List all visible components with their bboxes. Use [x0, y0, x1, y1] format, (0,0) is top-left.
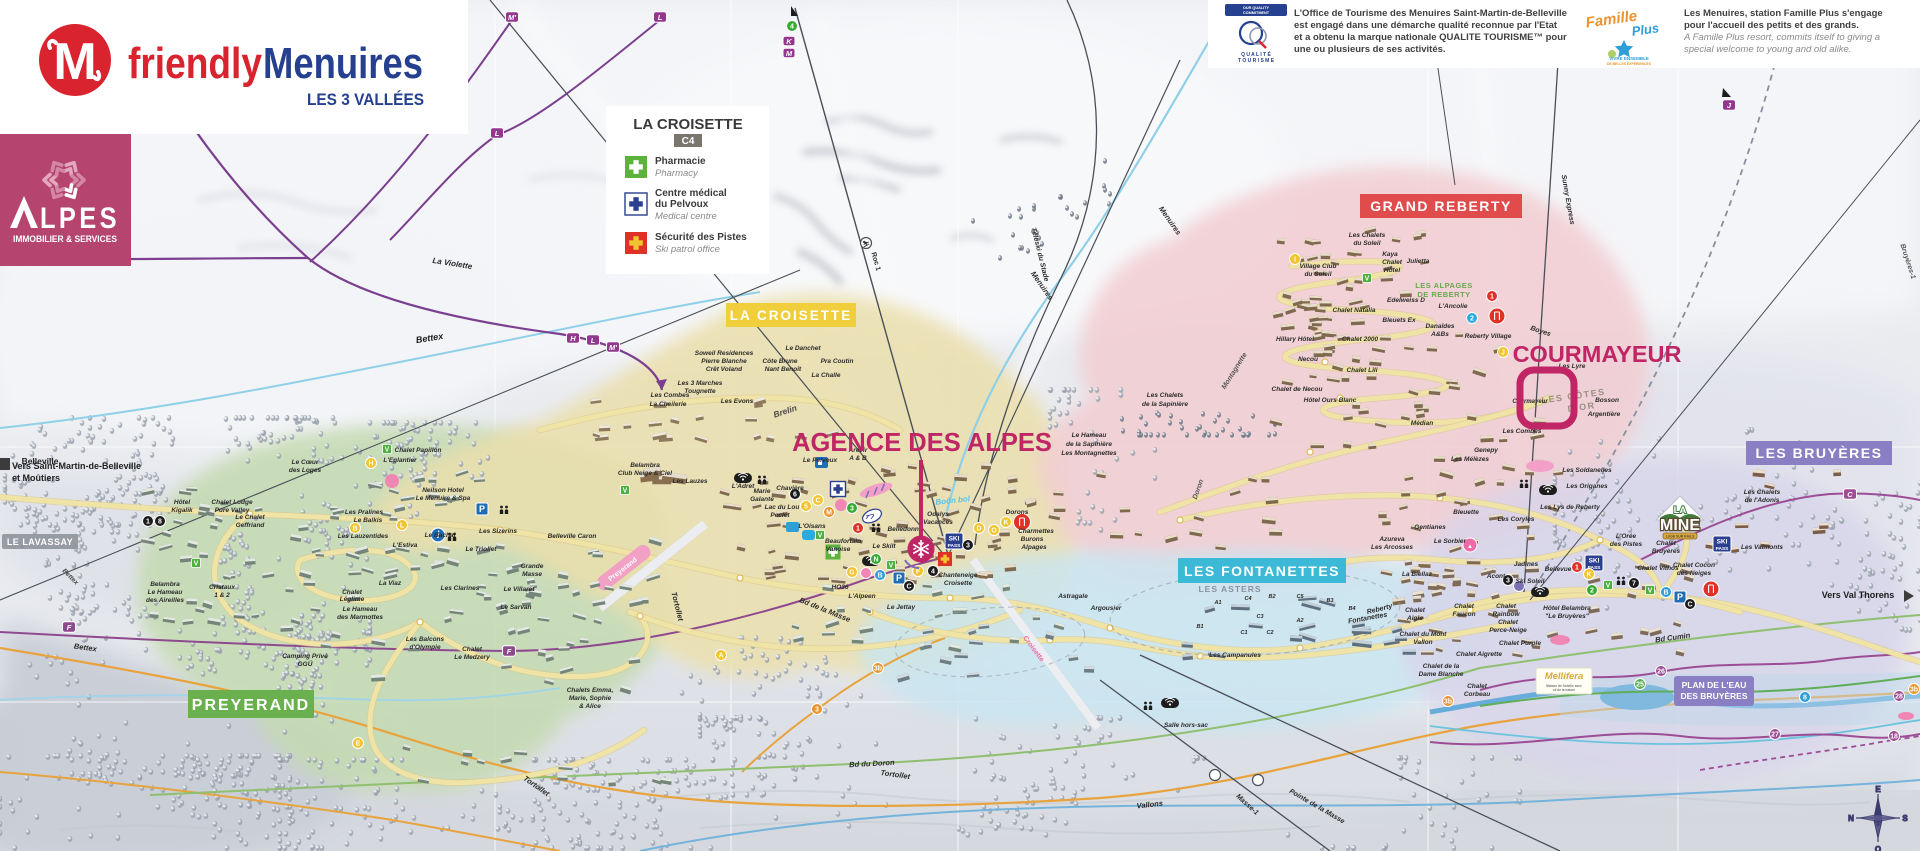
svg-text:d'Olympie: d'Olympie: [409, 644, 441, 651]
svg-text:V: V: [818, 533, 823, 540]
svg-text:Argousier: Argousier: [1090, 605, 1122, 612]
svg-text:L'Office de Tourisme des Menui: L'Office de Tourisme des Menuires Saint-…: [1294, 8, 1567, 19]
svg-text:K: K: [1586, 572, 1591, 579]
svg-text:4: 4: [931, 569, 935, 576]
svg-text:Le Skilt: Le Skilt: [872, 543, 896, 550]
svg-text:Necou: Necou: [1298, 356, 1318, 363]
svg-text:des Loges: des Loges: [289, 467, 322, 474]
svg-text:A: A: [718, 653, 723, 660]
svg-text:O: O: [991, 528, 997, 535]
svg-text:Les Soldanelles: Les Soldanelles: [1562, 467, 1612, 474]
svg-text:G: G: [849, 570, 855, 577]
svg-text:V: V: [623, 488, 628, 495]
svg-text:de l'Adonis: de l'Adonis: [1745, 497, 1780, 504]
svg-text:une ou plusieurs de ses activi: une ou plusieurs de ses activités.: [1294, 44, 1446, 55]
svg-text:Reberty Village: Reberty Village: [1465, 333, 1512, 340]
svg-text:Le Bachal: Le Bachal: [425, 532, 456, 539]
svg-text:18: 18: [1890, 734, 1898, 741]
svg-text:1: 1: [146, 519, 150, 526]
svg-text:Chalet de Necou: Chalet de Necou: [1272, 386, 1323, 393]
svg-text:Le Menuire & Spa: Le Menuire & Spa: [416, 495, 471, 502]
svg-text:Hillary Hôtel: Hillary Hôtel: [1276, 336, 1314, 343]
svg-text:6: 6: [793, 492, 797, 499]
svg-text:M': M': [609, 343, 617, 352]
svg-text:Chalet de la: Chalet de la: [1423, 663, 1460, 670]
svg-text:SKI: SKI: [1717, 539, 1728, 546]
svg-text:Les Montagnettes: Les Montagnettes: [1061, 450, 1117, 457]
svg-text:LUGE SUR RAILS: LUGE SUR RAILS: [1666, 535, 1695, 539]
svg-text:A Famille Plus resort, commits: A Famille Plus resort, commits itself to…: [1683, 32, 1880, 43]
svg-text:Chanteneige: Chanteneige: [938, 572, 977, 579]
svg-text:"Le Bruyères": "Le Bruyères": [1545, 613, 1590, 620]
svg-text:Pharmacie: Pharmacie: [655, 156, 706, 167]
svg-text:Pure Valley: Pure Valley: [215, 507, 250, 514]
svg-text:3: 3: [815, 707, 819, 714]
svg-text:des Neiges: des Neiges: [1677, 570, 1712, 577]
svg-text:du Soleil: du Soleil: [1304, 271, 1331, 278]
svg-text:LES BRUYÈRES: LES BRUYÈRES: [1756, 445, 1883, 461]
svg-text:Dorons: Dorons: [1006, 509, 1029, 516]
svg-text:Cristaux: Cristaux: [209, 584, 235, 591]
svg-text:L: L: [658, 13, 663, 22]
svg-text:SKI: SKI: [1589, 558, 1600, 565]
svg-text:L'Eglantier: L'Eglantier: [383, 457, 417, 464]
svg-text:C3: C3: [1256, 614, 1263, 620]
svg-text:DES BRUYÈRES: DES BRUYÈRES: [1680, 691, 1747, 701]
svg-text:de la Sapinière: de la Sapinière: [1066, 441, 1112, 448]
svg-text:Les Chalets: Les Chalets: [1147, 392, 1184, 399]
svg-text:Les Lys de Reberty: Les Lys de Reberty: [1540, 504, 1600, 511]
svg-text:Chalet: Chalet: [1382, 259, 1403, 266]
svg-text:3: 3: [850, 506, 854, 513]
svg-text:HO36: HO36: [832, 584, 849, 591]
svg-text:LA CROISETTE: LA CROISETTE: [633, 116, 742, 133]
svg-text:des Marmottes: des Marmottes: [337, 614, 383, 621]
svg-text:V: V: [889, 563, 894, 570]
svg-text:Charmettes: Charmettes: [1018, 528, 1054, 535]
svg-text:Chalet Aigrette: Chalet Aigrette: [1456, 651, 1502, 658]
svg-text:Rainbow: Rainbow: [1492, 611, 1520, 618]
svg-text:H: H: [570, 334, 576, 343]
svg-text:A2: A2: [1295, 618, 1303, 624]
svg-text:C4: C4: [682, 136, 695, 147]
svg-text:Kigalik: Kigalik: [171, 507, 193, 514]
svg-text:Médian: Médian: [1411, 420, 1433, 427]
svg-text:Chalet Natalia: Chalet Natalia: [1333, 307, 1376, 314]
svg-text:Marie, Sophie: Marie, Sophie: [569, 695, 612, 702]
svg-text:La Challe: La Challe: [812, 372, 841, 379]
svg-text:Camping Privé: Camping Privé: [282, 653, 328, 660]
svg-text:PREYERAND: PREYERAND: [192, 697, 310, 714]
svg-text:Gentianes: Gentianes: [1414, 524, 1446, 531]
svg-text:⛷: ⛷: [862, 240, 870, 248]
svg-text:Léglime: Léglime: [340, 596, 365, 603]
svg-text:Côte Brune: Côte Brune: [762, 358, 797, 365]
svg-text:Edelweiss D: Edelweiss D: [1387, 297, 1425, 304]
svg-text:7: 7: [1632, 581, 1636, 588]
svg-text:H: H: [368, 461, 373, 468]
svg-text:Le Danchet: Le Danchet: [785, 345, 821, 352]
svg-text:GRAND REBERTY: GRAND REBERTY: [1370, 198, 1512, 214]
svg-text:Belleville: Belleville: [22, 456, 59, 466]
svg-text:Hôtel: Hôtel: [174, 499, 190, 506]
svg-text:Le Medzery: Le Medzery: [454, 654, 490, 661]
svg-text:3b: 3b: [1444, 699, 1452, 706]
svg-text:LES 3 VALLÉES: LES 3 VALLÉES: [307, 90, 424, 109]
svg-text:B3: B3: [1326, 598, 1333, 604]
svg-text:du Soleil: du Soleil: [1353, 240, 1380, 247]
svg-text:B: B: [877, 573, 882, 580]
svg-text:Le Hameau: Le Hameau: [1072, 432, 1107, 439]
svg-text:2: 2: [1470, 316, 1474, 323]
svg-text:Centre médical: Centre médical: [655, 188, 727, 199]
svg-text:Le Chalet: Le Chalet: [235, 514, 265, 521]
svg-text:Hôtel: Hôtel: [1384, 267, 1400, 274]
svg-text:1 & 2: 1 & 2: [214, 592, 230, 599]
svg-text:SKI: SKI: [949, 536, 960, 543]
svg-text:Bosson: Bosson: [1595, 397, 1619, 404]
svg-text:Chalet: Chalet: [342, 589, 363, 596]
svg-text:F: F: [67, 623, 72, 632]
svg-text:pour l'accueil des petits et d: pour l'accueil des petits et des grands.: [1684, 20, 1859, 31]
svg-text:du Pelvoux: du Pelvoux: [655, 199, 709, 210]
svg-text:O: O: [1875, 845, 1881, 851]
svg-text:Chalet: Chalet: [1467, 683, 1488, 690]
svg-text:Vacances: Vacances: [923, 519, 953, 526]
svg-text:Bleuets Ex: Bleuets Ex: [1382, 317, 1416, 324]
svg-text:Les Mélèzes: Les Mélèzes: [1451, 456, 1489, 463]
svg-text:Hôtel Ours Blanc: Hôtel Ours Blanc: [1304, 397, 1357, 404]
svg-text:Pierre Blanche: Pierre Blanche: [701, 358, 747, 365]
svg-text:Geffriand: Geffriand: [236, 522, 266, 529]
svg-text:J: J: [1501, 350, 1505, 357]
svg-text:Le Sarvan: Le Sarvan: [500, 604, 531, 611]
svg-text:Les Sizerins: Les Sizerins: [479, 528, 517, 535]
svg-text:Vers Val Thorens: Vers Val Thorens: [1822, 590, 1895, 600]
svg-text:B1: B1: [1196, 624, 1203, 630]
svg-text:DE BELLES EXPÉRIENCES: DE BELLES EXPÉRIENCES: [1607, 61, 1652, 66]
svg-text:C: C: [906, 584, 911, 591]
svg-text:Neilson Hotel: Neilson Hotel: [422, 487, 464, 494]
svg-text:Pra Coutin: Pra Coutin: [821, 358, 854, 365]
svg-text:E: E: [1875, 785, 1881, 794]
svg-text:Belambra: Belambra: [150, 581, 180, 588]
svg-text:Les Balcons: Les Balcons: [406, 636, 445, 643]
svg-text:& Alice: & Alice: [579, 703, 601, 710]
svg-text:Salle hors-sac: Salle hors-sac: [1164, 722, 1208, 729]
svg-text:Vallon: Vallon: [1413, 639, 1432, 646]
svg-text:D: D: [976, 526, 981, 533]
svg-text:L: L: [400, 523, 405, 530]
svg-text:cil de la nature: cil de la nature: [1553, 688, 1576, 692]
svg-text:Nant Benoît: Nant Benoît: [765, 366, 802, 373]
svg-text:P: P: [479, 504, 485, 514]
svg-text:Chalets Emma,: Chalets Emma,: [567, 687, 614, 694]
svg-text:Chalet Papillon: Chalet Papillon: [395, 447, 442, 454]
svg-text:1: 1: [1575, 565, 1579, 572]
svg-text:V: V: [1606, 583, 1611, 590]
svg-text:Corbeau: Corbeau: [1464, 691, 1490, 698]
svg-text:B: B: [352, 526, 357, 533]
svg-text:B4: B4: [1348, 606, 1355, 612]
svg-text:COMMITMENT: COMMITMENT: [1243, 11, 1270, 15]
svg-text:COURMAYEUR: COURMAYEUR: [1513, 341, 1682, 367]
svg-text:V: V: [385, 447, 390, 454]
svg-text:Le Hameau: Le Hameau: [343, 606, 378, 613]
svg-text:PASS: PASS: [1716, 546, 1730, 552]
svg-text:Q U A L I T É: Q U A L I T É: [1241, 50, 1271, 58]
svg-text:Galante: Galante: [750, 496, 774, 503]
svg-text:Menuires: Menuires: [263, 39, 423, 88]
svg-text:M: M: [53, 33, 96, 91]
svg-text:L: L: [591, 336, 596, 345]
svg-text:Jadines: Jadines: [1514, 561, 1539, 568]
svg-text:Les Chalets: Les Chalets: [1744, 489, 1781, 496]
svg-text:Masse: Masse: [522, 571, 542, 578]
svg-text:Les Lauzentides: Les Lauzentides: [338, 533, 389, 540]
svg-text:et Moûtiers: et Moûtiers: [12, 473, 60, 483]
svg-text:Les Combes: Les Combes: [651, 392, 690, 399]
svg-text:La Biellaz: La Biellaz: [1402, 571, 1433, 578]
svg-text:Vanoise: Vanoise: [826, 546, 851, 553]
svg-text:C5: C5: [1296, 594, 1304, 600]
svg-text:K: K: [786, 37, 792, 46]
svg-text:3b: 3b: [1910, 687, 1918, 694]
svg-text:28: 28: [1895, 694, 1903, 701]
svg-text:Le Villaret: Le Villaret: [504, 586, 536, 593]
svg-text:Bellevue: Bellevue: [1545, 566, 1572, 573]
svg-text:Croisette: Croisette: [944, 580, 973, 587]
svg-text:Peclet: Peclet: [770, 512, 790, 519]
svg-text:Mellifera: Mellifera: [1545, 671, 1584, 682]
svg-text:LA CROISETTE: LA CROISETTE: [730, 308, 853, 323]
svg-text:LPES: LPES: [40, 202, 120, 235]
svg-text:Chalet Lili: Chalet Lili: [1346, 367, 1377, 374]
svg-text:M': M': [508, 13, 516, 22]
svg-text:LES ASTERS: LES ASTERS: [1198, 584, 1261, 594]
svg-text:LA: LA: [1674, 505, 1687, 516]
svg-text:La Cheilerie: La Cheilerie: [650, 401, 687, 408]
svg-text:Medical centre: Medical centre: [655, 211, 717, 222]
svg-text:Chalet Lodge: Chalet Lodge: [211, 499, 253, 506]
svg-text:Le Balkis: Le Balkis: [354, 517, 383, 524]
svg-text:Les Origanes: Les Origanes: [1566, 483, 1608, 490]
svg-text:M: M: [826, 510, 832, 517]
svg-text:C: C: [1687, 602, 1692, 609]
svg-text:Kaya: Kaya: [1382, 251, 1398, 258]
svg-text:friendly: friendly: [128, 39, 262, 88]
svg-text:P: P: [896, 573, 902, 583]
svg-text:PLAN DE L'EAU: PLAN DE L'EAU: [1682, 680, 1747, 690]
svg-text:Chalet: Chalet: [462, 646, 483, 653]
svg-text:L'Oisans: L'Oisans: [798, 523, 826, 530]
svg-text:Chalet: Chalet: [1454, 603, 1475, 610]
svg-text:Beaufortain: Beaufortain: [825, 538, 861, 545]
svg-text:E: E: [356, 741, 361, 748]
svg-text:C4: C4: [1244, 596, 1251, 602]
svg-text:N: N: [873, 557, 878, 564]
svg-text:L'Estiva: L'Estiva: [393, 542, 418, 549]
svg-text:F: F: [916, 569, 921, 576]
svg-text:27: 27: [1771, 732, 1779, 739]
svg-text:I: I: [1294, 257, 1296, 264]
svg-text:VIVRE ENSEMBLE: VIVRE ENSEMBLE: [1609, 56, 1649, 61]
svg-text:L'Alpeen: L'Alpeen: [848, 593, 875, 600]
svg-text:OUR QUALITY: OUR QUALITY: [1243, 6, 1270, 10]
svg-text:Les Menuires, station Famille: Les Menuires, station Famille Plus s'eng…: [1684, 8, 1883, 19]
svg-text:F: F: [507, 647, 512, 656]
svg-text:Chalet: Chalet: [1498, 619, 1519, 626]
svg-text:Soweil Residences: Soweil Residences: [695, 350, 754, 357]
svg-text:L'Orée: L'Orée: [1616, 533, 1637, 540]
svg-text:est engagé dans une démarche q: est engagé dans une démarche qualité rec…: [1294, 20, 1558, 31]
svg-text:Les Coryles: Les Coryles: [1498, 516, 1535, 523]
svg-text:Marie: Marie: [754, 488, 771, 495]
svg-text:3b: 3b: [874, 666, 882, 673]
svg-text:LE LAVASSAY: LE LAVASSAY: [7, 537, 73, 547]
svg-text:Club Neige & Ciel: Club Neige & Ciel: [618, 470, 672, 477]
svg-text:Alpages: Alpages: [1020, 544, 1047, 551]
svg-text:2: 2: [1590, 588, 1594, 595]
svg-text:V: V: [1648, 588, 1653, 595]
svg-text:Odalys: Odalys: [927, 511, 949, 518]
svg-text:8: 8: [158, 519, 162, 526]
svg-text:Chalet Purple: Chalet Purple: [1499, 640, 1541, 647]
svg-text:K: K: [1003, 520, 1008, 527]
svg-text:25: 25: [1636, 682, 1644, 689]
svg-text:Les Evons: Les Evons: [721, 398, 754, 405]
svg-text:3: 3: [966, 543, 970, 550]
svg-text:C2: C2: [1266, 630, 1273, 636]
svg-text:Chalet du Mont: Chalet du Mont: [1400, 631, 1448, 638]
svg-text:Genepy: Genepy: [1474, 447, 1498, 454]
svg-text:P: P: [1677, 592, 1683, 602]
svg-text:special welcome to young and o: special welcome to young and old alike.: [1684, 44, 1851, 55]
svg-text:Belleville Caron: Belleville Caron: [548, 533, 597, 540]
svg-text:La Viaz: La Viaz: [379, 580, 402, 587]
svg-text:Le Jettay: Le Jettay: [887, 604, 916, 611]
svg-text:Ski Soleil: Ski Soleil: [1516, 578, 1545, 585]
svg-text:PASS: PASS: [948, 543, 962, 549]
svg-text:V: V: [194, 561, 199, 568]
svg-text:Danaïdes: Danaïdes: [1426, 323, 1455, 330]
svg-text:Dame Blanche: Dame Blanche: [1419, 671, 1464, 678]
svg-text:LES FONTANETTES: LES FONTANETTES: [1184, 563, 1340, 579]
svg-text:Chalet: Chalet: [1496, 603, 1517, 610]
svg-text:N: N: [1848, 814, 1854, 823]
svg-text:Les Valmonts: Les Valmonts: [1741, 544, 1783, 551]
svg-text:▲: ▲: [1467, 544, 1473, 550]
svg-text:Acont: Acont: [1486, 573, 1506, 580]
svg-text:26: 26: [1657, 669, 1665, 676]
svg-text:Les Clarines: Les Clarines: [441, 585, 480, 592]
svg-text:Burons: Burons: [1021, 536, 1044, 543]
svg-text:Les Arcosses: Les Arcosses: [1371, 544, 1413, 551]
svg-text:Sécurité des Pistes: Sécurité des Pistes: [655, 232, 747, 243]
svg-text:de la Sapinière: de la Sapinière: [1142, 401, 1188, 408]
svg-text:Les Chalets: Les Chalets: [1349, 232, 1386, 239]
svg-text:L: L: [495, 129, 500, 138]
svg-text:B: B: [1663, 590, 1668, 597]
svg-text:L'Ancolie: L'Ancolie: [1439, 303, 1468, 310]
svg-text:Les Lauzes: Les Lauzes: [672, 478, 707, 485]
svg-text:Crêt Voland: Crêt Voland: [706, 366, 743, 373]
svg-text:Le Triollet: Le Triollet: [466, 546, 498, 553]
svg-text:Astragale: Astragale: [1057, 593, 1088, 600]
svg-text:3: 3: [1506, 578, 1510, 585]
svg-text:et a obtenu la marque national: et a obtenu la marque nationale QUALITE …: [1294, 32, 1567, 43]
svg-text:A1: A1: [1213, 600, 1221, 606]
svg-text:8: 8: [1803, 695, 1807, 702]
svg-text:Bleuette: Bleuette: [1453, 509, 1479, 516]
svg-text:des Pistes: des Pistes: [1610, 541, 1643, 548]
svg-text:GGÜ: GGÜ: [298, 659, 313, 668]
svg-text:Azureva: Azureva: [1378, 536, 1405, 543]
svg-text:Belambra: Belambra: [630, 462, 660, 469]
svg-text:1: 1: [1490, 294, 1494, 301]
svg-text:des Aireilles: des Aireilles: [146, 597, 184, 604]
svg-text:V: V: [1365, 276, 1370, 283]
svg-text:Aigle: Aigle: [1406, 615, 1423, 622]
svg-text:Faucon: Faucon: [1452, 611, 1475, 618]
svg-text:Bruyères: Bruyères: [1652, 548, 1681, 555]
svg-text:Le Cœur: Le Cœur: [292, 459, 319, 466]
svg-text:Les Pralines: Les Pralines: [345, 509, 384, 516]
svg-text:5: 5: [804, 504, 808, 511]
svg-text:Chavière: Chavière: [776, 485, 804, 492]
svg-text:Le Sorbier: Le Sorbier: [1434, 538, 1467, 545]
svg-text:Argentière: Argentière: [1587, 411, 1621, 418]
svg-text:C: C: [815, 498, 820, 505]
svg-text:Hôtel Belambra: Hôtel Belambra: [1543, 605, 1591, 612]
svg-text:B2: B2: [1268, 594, 1275, 600]
svg-text:AGENCE DES ALPES: AGENCE DES ALPES: [792, 429, 1052, 457]
svg-text:S: S: [1902, 814, 1908, 823]
svg-text:Perce-Neige: Perce-Neige: [1489, 627, 1527, 634]
svg-text:4: 4: [790, 24, 794, 31]
svg-text:MINE: MINE: [1660, 517, 1700, 534]
svg-text:Chalet: Chalet: [1405, 607, 1426, 614]
svg-text:Le Pelvoux: Le Pelvoux: [803, 457, 838, 464]
svg-text:Belledonne: Belledonne: [887, 526, 922, 533]
svg-text:L'Adret: L'Adret: [732, 483, 755, 490]
svg-text:IMMOBILIER & SERVICES: IMMOBILIER & SERVICES: [13, 234, 117, 244]
svg-text:Village Club: Village Club: [1300, 263, 1337, 270]
svg-text:C: C: [1847, 490, 1853, 499]
svg-text:Julietta: Julietta: [1407, 258, 1430, 265]
svg-text:M: M: [786, 49, 793, 58]
svg-text:Chalet Cocon: Chalet Cocon: [1673, 562, 1715, 569]
svg-text:LES ALPAGES: LES ALPAGES: [1415, 281, 1473, 290]
svg-text:Pharmacy: Pharmacy: [655, 168, 699, 179]
svg-text:A&Bs: A&Bs: [1430, 331, 1449, 338]
svg-text:Les Campanules: Les Campanules: [1209, 652, 1261, 659]
svg-text:Chalet: Chalet: [1656, 540, 1677, 547]
svg-text:Les 3 Marches: Les 3 Marches: [678, 380, 723, 387]
svg-text:1: 1: [856, 526, 860, 533]
svg-text:Chalet 2000: Chalet 2000: [1342, 336, 1379, 343]
svg-text:Lac du Lou: Lac du Lou: [765, 504, 800, 511]
svg-text:Grande: Grande: [521, 563, 544, 570]
svg-text:T O U R I S M E: T O U R I S M E: [1238, 58, 1275, 64]
svg-text:C1: C1: [1240, 630, 1247, 636]
svg-text:DE REBERTY: DE REBERTY: [1417, 290, 1470, 299]
svg-text:Le Hameau: Le Hameau: [148, 589, 183, 596]
svg-text:Ski patrol office: Ski patrol office: [655, 244, 720, 255]
